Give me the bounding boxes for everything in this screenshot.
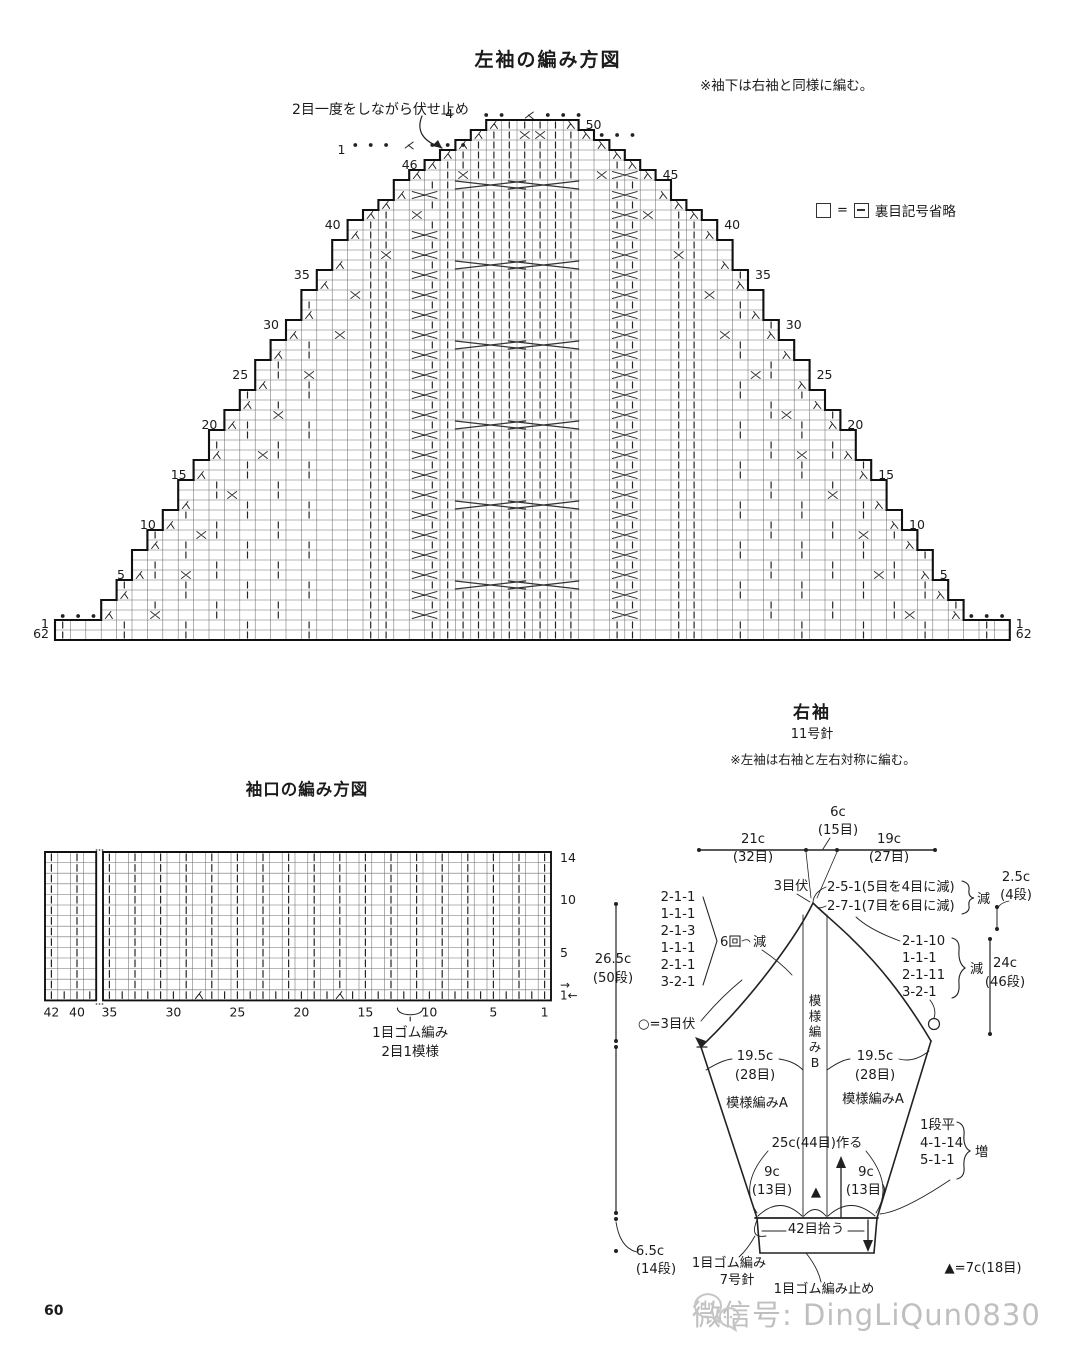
bind-off-dot [484, 113, 488, 117]
schematic-curve [779, 1059, 803, 1070]
bind-off-dot [631, 133, 635, 137]
measure-dot [835, 848, 839, 852]
bind-off-dot [985, 614, 989, 618]
schematic-line [823, 838, 830, 849]
height-26-5c-rows: (50段) [593, 970, 633, 986]
break-dots [96, 1003, 98, 1005]
schematic-curve [762, 950, 792, 975]
schematic-line [874, 1218, 877, 1253]
schematic-curve [827, 1059, 850, 1070]
width-21c-sts: (32目) [733, 850, 773, 865]
stitch-number: 15 [357, 1004, 373, 1019]
panel-b: 模様編みB [809, 993, 822, 1070]
arrowhead [836, 1156, 846, 1168]
break-dots [102, 849, 104, 851]
stitch-number: 25 [229, 1004, 245, 1019]
repeat-label: 2目1模様 [381, 1044, 439, 1060]
width-19-5c-right-sts: (28目) [855, 1068, 895, 1083]
dec-left-1: 2-1-1 [661, 890, 696, 905]
dec-right-b4: 3-2-1 [902, 985, 937, 1000]
dec-left-2: 1-1-1 [661, 907, 696, 922]
schematic-curve [828, 1206, 875, 1217]
schematic-curve [813, 887, 826, 902]
height-24c: 24c [993, 956, 1017, 971]
dec-left-times: 6回 [720, 935, 742, 950]
right-sleeve-schematic: 21c(32目)6c(15目)19c(27目)3目伏2-5-1(5目を4目に減)… [555, 795, 1080, 1315]
bind-off-dot [600, 133, 604, 137]
schematic-curve [806, 1253, 821, 1282]
stitch-number: 40 [69, 1004, 85, 1019]
bind-off-dot [61, 614, 65, 618]
schematic-curve [804, 1210, 826, 1217]
schematic-curve [616, 1222, 637, 1252]
row-label-right: 15 [878, 467, 894, 482]
bind-off-dot [561, 113, 565, 117]
width-9c-right-sts: (13目) [846, 1183, 886, 1198]
dec-left-5: 2-1-1 [661, 958, 696, 973]
row-label-right: 40 [724, 217, 740, 232]
page-number: 60 [44, 1303, 63, 1319]
schematic-curve [758, 1206, 802, 1217]
height-6-5c-rows: (14段) [636, 1261, 676, 1277]
row-label-right: 62 [1016, 626, 1032, 641]
measure-dot [988, 937, 992, 941]
panel-a-left: 模様編みA [726, 1095, 788, 1111]
watermark-text: 微信号: DingLiQun0830 [692, 1292, 1041, 1334]
cuff-needle: 7号針 [720, 1272, 755, 1288]
row-label-left: 35 [294, 267, 310, 282]
cast-on: 25c(44目)作る [772, 1135, 863, 1151]
width-6c-sts: (15目) [818, 823, 858, 838]
width-6c: 6c [830, 805, 846, 820]
dec-left-4: 1-1-1 [661, 941, 696, 956]
bind-off-dot [446, 143, 450, 147]
schematic-curve [899, 1051, 929, 1060]
dec-right-b2: 1-1-1 [902, 951, 937, 966]
bind-off-dot [577, 113, 581, 117]
left-sleeve-knitting-chart: 4640353025201510550454035302520151051621… [30, 108, 1050, 653]
bind-off-dot [369, 143, 373, 147]
stitch-number: 30 [165, 1004, 181, 1019]
schematic-curve [739, 1236, 755, 1257]
break-dots [96, 849, 98, 851]
schematic-curve [930, 1000, 935, 1018]
row-label-right: 10 [909, 517, 925, 532]
inc-seq1: 4-1-14 [920, 1136, 963, 1151]
sleeve-note: ※袖下は右袖と同様に編む。 [700, 74, 873, 94]
measure-dot [995, 927, 999, 931]
schematic-curve [701, 903, 813, 1047]
measure-dot [614, 1039, 618, 1043]
measure-dot [614, 1045, 618, 1049]
bind-off-dot [461, 143, 465, 147]
triangle-legend: ▲=7c(18目) [944, 1261, 1021, 1276]
inc-label: 増 [975, 1144, 988, 1160]
panel-a-right: 模様編みA [842, 1091, 904, 1107]
schematic-line [703, 897, 717, 941]
width-9c-left-sts: (13目) [752, 1183, 792, 1198]
schematic-curve [797, 894, 810, 902]
row-label-right: 25 [817, 367, 833, 382]
schematic-line [703, 941, 717, 985]
height-24c-rows: (46段) [985, 974, 1025, 990]
break-dots [99, 1003, 101, 1005]
dec-right-b-label: 減 [970, 960, 983, 977]
width-19-5c-left: 19.5c [737, 1049, 774, 1064]
pickup-42: 42目拾う [788, 1221, 844, 1237]
dec-left-3: 2-1-3 [661, 924, 696, 939]
width-19c-sts: (27目) [869, 850, 909, 865]
schematic-curve [866, 1151, 883, 1213]
stitch-count-label: 1 [337, 142, 345, 157]
bind-off-3: 3目伏 [774, 878, 809, 894]
wechat-icon [692, 1291, 742, 1335]
row-label-left: 30 [263, 317, 279, 332]
bind-off-dot [546, 113, 550, 117]
bind-off-dot [969, 614, 973, 618]
bind-off-dot [615, 133, 619, 137]
bind-off-dec [405, 142, 413, 149]
stitch-number: 42 [43, 1004, 59, 1019]
cuff-rib: 1目ゴム編み [692, 1254, 766, 1271]
bind-off-dot [1000, 614, 1004, 618]
triangle-marker: ▲ [811, 1185, 822, 1200]
stitch-number: 20 [293, 1004, 309, 1019]
repeat-label: 1目ゴム編み [372, 1024, 448, 1041]
dec-right-a1: 2-5-1(5目を4目に減) [827, 878, 955, 895]
height-26-5c: 26.5c [595, 952, 632, 967]
width-21c: 21c [741, 832, 765, 847]
measure-dot [988, 1032, 992, 1036]
break-dots [99, 849, 101, 851]
row-label-left: 62 [33, 626, 49, 641]
stitch-number: 35 [101, 1004, 117, 1019]
row-label-left: 20 [201, 417, 217, 432]
measure-dot [995, 905, 999, 909]
dec-right-b3: 2-1-11 [902, 968, 945, 983]
width-9c-left: 9c [764, 1165, 780, 1180]
width-19-5c-right: 19.5c [857, 1049, 894, 1064]
mirror-note: ※左袖は右袖と左右対称に編む。 [688, 749, 958, 768]
row-label-right: 50 [586, 117, 602, 132]
bind-off-dot [384, 143, 388, 147]
width-19-5c-left-sts: (28目) [735, 1068, 775, 1083]
row-label-right: 35 [755, 267, 771, 282]
measure-dot [614, 902, 618, 906]
right-sleeve-title: 右袖 [757, 698, 867, 723]
height-6-5c: 6.5c [636, 1244, 664, 1259]
row-label-right: 5 [940, 567, 948, 582]
schematic-curve [750, 1151, 768, 1213]
stitch-number: 10 [421, 1004, 437, 1019]
bind-off-dec [525, 112, 533, 119]
dec-right-a2: 2-7-1(7目を6目に減) [827, 897, 955, 914]
height-2-5c: 2.5c [1002, 870, 1030, 885]
cuff-chart-title: 袖口の編み方図 [177, 776, 437, 800]
cuff-knitting-chart: 42403530252015105114105→1←1目ゴム編み2目1模様 [35, 840, 625, 1070]
bind-off-dot [76, 614, 80, 618]
bind-off-dot [92, 614, 96, 618]
arrowhead [863, 1240, 873, 1252]
measure-dot [614, 1249, 618, 1253]
schematic-curve [754, 1220, 766, 1236]
width-9c-right: 9c [858, 1165, 874, 1180]
measure-dot [933, 848, 937, 852]
schematic-curve [856, 917, 900, 941]
bind-off-circle-marker [929, 1019, 940, 1030]
stitch-number: 5 [489, 1004, 497, 1019]
needle-size: 11号針 [757, 723, 867, 742]
left-sleeve-chart-title: 左袖の編み方図 [398, 45, 698, 72]
stitch-number: 1 [541, 1004, 549, 1019]
row-label-left: 25 [232, 367, 248, 382]
measure-dot [804, 848, 808, 852]
measure-dot [614, 1211, 618, 1215]
row-label-right: 45 [663, 167, 679, 182]
inc-flat: 1段平 [920, 1117, 955, 1133]
stitch-count-label: 4 [445, 108, 453, 121]
dec-left-6: 3-2-1 [661, 975, 696, 990]
bind-off-dot [353, 143, 357, 147]
schematic-curve [706, 1059, 732, 1070]
dec-left-label: 減 [753, 933, 766, 950]
grid-lines [55, 120, 1010, 640]
repeat-brace [397, 1008, 423, 1021]
measure-dot [614, 1217, 618, 1221]
height-2-5c-rows: (4段) [1000, 887, 1032, 903]
row-label-right: 20 [847, 417, 863, 432]
schematic-curve [880, 1180, 950, 1214]
schematic-curve [701, 980, 742, 1021]
dec-right-b1: 2-1-10 [902, 934, 945, 949]
row-label-left: 15 [171, 467, 187, 482]
row-label-left: 40 [325, 217, 341, 232]
measure-dot [697, 848, 701, 852]
circle-legend: ○=3目伏 [638, 1016, 695, 1032]
grid-lines [45, 852, 551, 1000]
schematic-curve [962, 881, 974, 914]
pattern-page: 左袖の編み方図 ※袖下は右袖と同様に編む。 2目一度をしながら伏せ止め = 裏目… [0, 0, 1080, 1371]
bind-off-dot [500, 113, 504, 117]
schematic-curve [952, 938, 965, 998]
width-19c: 19c [877, 832, 901, 847]
inc-seq2: 5-1-1 [920, 1153, 955, 1168]
row-label-left: 5 [117, 567, 125, 582]
row-label-left: 46 [402, 157, 418, 172]
schematic-curve [742, 940, 750, 942]
row-label-left: 10 [140, 517, 156, 532]
dec-right-a-label: 減 [977, 890, 990, 907]
watermark: 微信号: DingLiQun0830 [692, 1292, 1041, 1334]
row-label-right: 30 [786, 317, 802, 332]
